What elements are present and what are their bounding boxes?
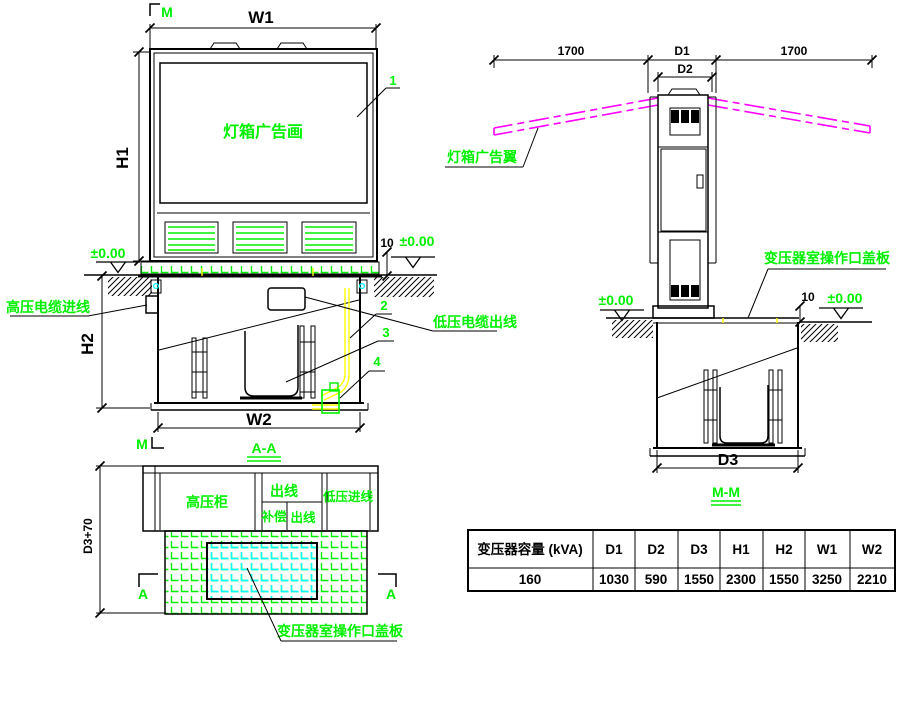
lightbox-outer-rect	[150, 49, 377, 261]
w2-dim-label: W2	[246, 410, 272, 429]
side-ground-hatch-left	[612, 320, 653, 338]
dim-1700-left-label: 1700	[558, 44, 585, 58]
table-value-h2: 1550	[769, 572, 799, 587]
cad-drawing-page: M W1 H1 灯箱广告画	[0, 0, 905, 724]
side-chamber	[650, 322, 805, 456]
side-view: 1700 D1 1700 D2 灯箱广告翼	[445, 44, 891, 505]
dim-1700-right-label: 1700	[781, 44, 808, 58]
lightbox-body: 灯箱广告画	[150, 43, 377, 261]
section-marker-a-right: A	[378, 574, 396, 602]
table-value-capacity: 160	[519, 572, 542, 587]
callout-4-label: 4	[373, 354, 381, 369]
base-grating	[138, 262, 382, 276]
ground-hatch-right	[374, 277, 434, 297]
m-marker-top-label: M	[161, 4, 173, 20]
table-header-w2: W2	[862, 542, 882, 557]
side-level-left-label: ±0.00	[599, 292, 634, 308]
callout-3-label: 3	[382, 325, 389, 340]
aa-title-label: A-A	[252, 440, 277, 456]
callout-1: 1	[357, 73, 400, 117]
table-header-d3: D3	[690, 542, 708, 557]
h1-dim-label: H1	[113, 147, 132, 169]
side-ground-hatch-right	[801, 324, 838, 342]
level-right-label: ±0.00	[400, 233, 435, 249]
hv-cabinet-label: 高压柜	[186, 494, 228, 510]
operation-cover-plan	[207, 543, 317, 599]
hv-cable-label: 高压电缆进线	[6, 299, 90, 315]
section-marker-m-bottom: M	[136, 436, 164, 452]
side-level-right-label: ±0.00	[828, 290, 863, 306]
dim-10-right: 10	[380, 236, 394, 281]
spec-table: 变压器容量 (kVA) D1 D2 D3 H1 H2 W1 W2 160 103…	[468, 530, 895, 591]
anchor-detail-left	[151, 280, 161, 293]
transformer-side	[704, 370, 782, 445]
cover-label-plan: 变压器室操作口盖板	[277, 623, 404, 639]
wing-label: 灯箱广告翼	[447, 149, 517, 165]
pit-area	[165, 531, 367, 614]
table-header-h1: H1	[732, 542, 750, 557]
table-value-d1: 1030	[599, 572, 629, 587]
outgoing-top-label: 出线	[270, 483, 298, 499]
section-marker-a-left: A	[138, 574, 158, 602]
lv-incoming-label: 低压进线	[322, 489, 374, 504]
lightbox-ad-text: 灯箱广告画	[223, 122, 303, 141]
cover-label-side: 变压器室操作口盖板	[764, 250, 891, 266]
junction-box	[268, 288, 305, 310]
compensation-label: 补偿	[260, 509, 287, 524]
slope-line	[159, 300, 359, 350]
column-cap	[668, 89, 700, 95]
column-door	[661, 149, 706, 231]
cad-drawing: M W1 H1 灯箱广告画	[0, 0, 905, 724]
table-header-h2: H2	[775, 542, 792, 557]
door-handle	[697, 175, 703, 188]
cabinet-row: 高压柜 出线 补偿 出线 低压进线	[143, 466, 378, 531]
dim-d2: D2	[654, 62, 717, 92]
section-title-aa: A-A	[247, 440, 281, 461]
plan-view: D3+70 高压柜 出线 补偿 出线 低压进线 A A	[81, 462, 404, 642]
callout-1-label: 1	[389, 73, 396, 88]
w1-dim-label: W1	[248, 8, 274, 27]
outgoing-bottom-label: 出线	[290, 510, 316, 525]
dim-w1: W1	[146, 8, 381, 48]
section-marker-m-top: M	[150, 4, 173, 20]
a-marker-left-label: A	[138, 586, 148, 602]
louver-panel-1	[165, 222, 218, 253]
lv-cable-label-group: 低压电缆出线	[305, 297, 517, 331]
louver-panel-3	[302, 222, 356, 253]
a-marker-right-label: A	[386, 586, 396, 602]
d3-70-dim-label: D3+70	[81, 518, 95, 554]
louver-panel-2	[233, 222, 287, 253]
underground-chamber	[146, 277, 368, 413]
front-view: M W1 H1 灯箱广告画	[6, 4, 517, 461]
wing-right	[708, 98, 870, 133]
side-dim-10: 10	[796, 290, 815, 327]
wing-label-group: 灯箱广告翼	[445, 128, 538, 167]
level-left-label: ±0.00	[91, 245, 126, 261]
hv-cable-entry-box	[146, 296, 158, 313]
callout-2-label: 2	[380, 298, 387, 313]
dim-d3: D3	[653, 450, 803, 473]
callout-4: 4	[340, 354, 385, 398]
m-marker-bottom-label: M	[136, 436, 148, 452]
h2-dim-label: H2	[78, 333, 97, 355]
table-header-capacity: 变压器容量 (kVA)	[477, 541, 583, 557]
anchor-detail-right	[357, 280, 367, 293]
table-header-d2: D2	[647, 542, 664, 557]
dim-d3-70: D3+70	[81, 462, 165, 618]
lv-cable-label: 低压电缆出线	[432, 314, 517, 330]
dim-10-label: 10	[380, 236, 394, 250]
hv-cable-label-group: 高压电缆进线	[6, 299, 147, 316]
operation-cover-plate	[653, 318, 799, 323]
d2-dim-label: D2	[677, 62, 693, 76]
transformer-front	[192, 325, 315, 398]
d1-dim-label: D1	[674, 44, 690, 58]
ground-hatch-left	[108, 277, 152, 296]
table-value-w2: 2210	[857, 572, 887, 587]
side-column	[650, 89, 716, 318]
table-value-h1: 2300	[726, 572, 756, 587]
table-header-d1: D1	[605, 542, 623, 557]
table-value-d2: 590	[645, 572, 668, 587]
table-value-d3: 1550	[684, 572, 714, 587]
side-level-left: ±0.00	[599, 292, 653, 338]
dim-h1: H1	[113, 48, 151, 266]
wing-left	[494, 98, 658, 135]
d3-dim-label: D3	[718, 452, 739, 469]
table-header-w1: W1	[817, 542, 838, 557]
table-header-row: 变压器容量 (kVA) D1 D2 D3 H1 H2 W1 W2	[477, 541, 882, 557]
section-title-mm: M-M	[711, 484, 741, 505]
table-value-row: 160 1030 590 1550 2300 1550 3250 2210	[519, 572, 887, 587]
table-value-w1: 3250	[812, 572, 842, 587]
mm-title-label: M-M	[712, 484, 740, 500]
